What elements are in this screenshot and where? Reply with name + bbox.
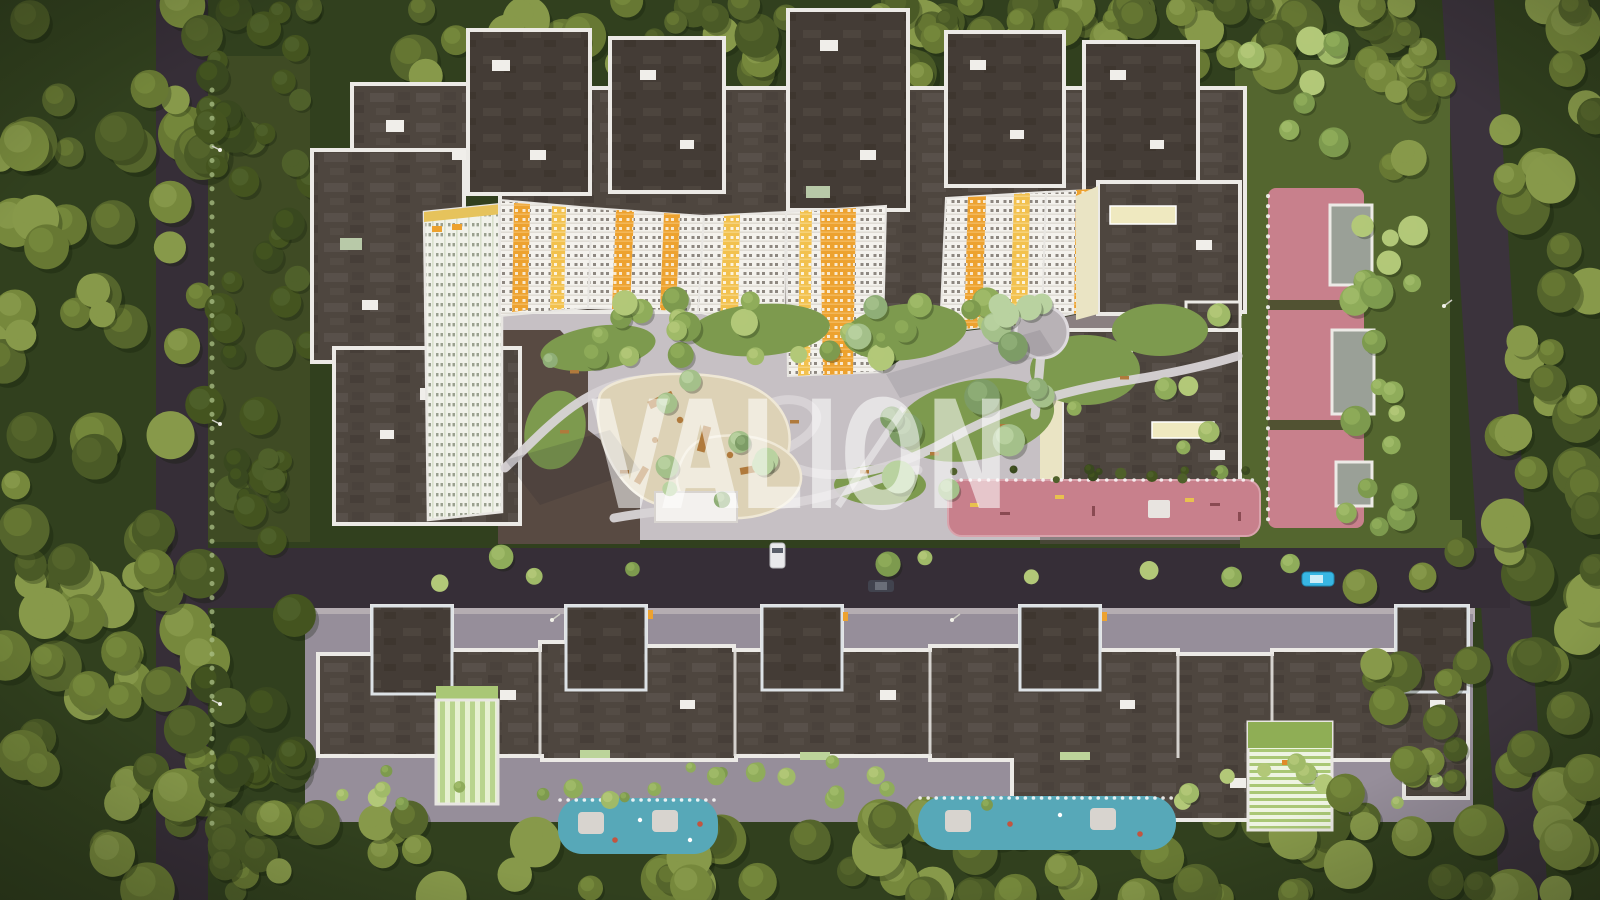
scene-svg: VALION	[0, 0, 1600, 900]
watermark: VALION	[591, 370, 1009, 544]
watermark-text: VALION	[591, 370, 1009, 544]
aerial-render: VALION	[0, 0, 1600, 900]
